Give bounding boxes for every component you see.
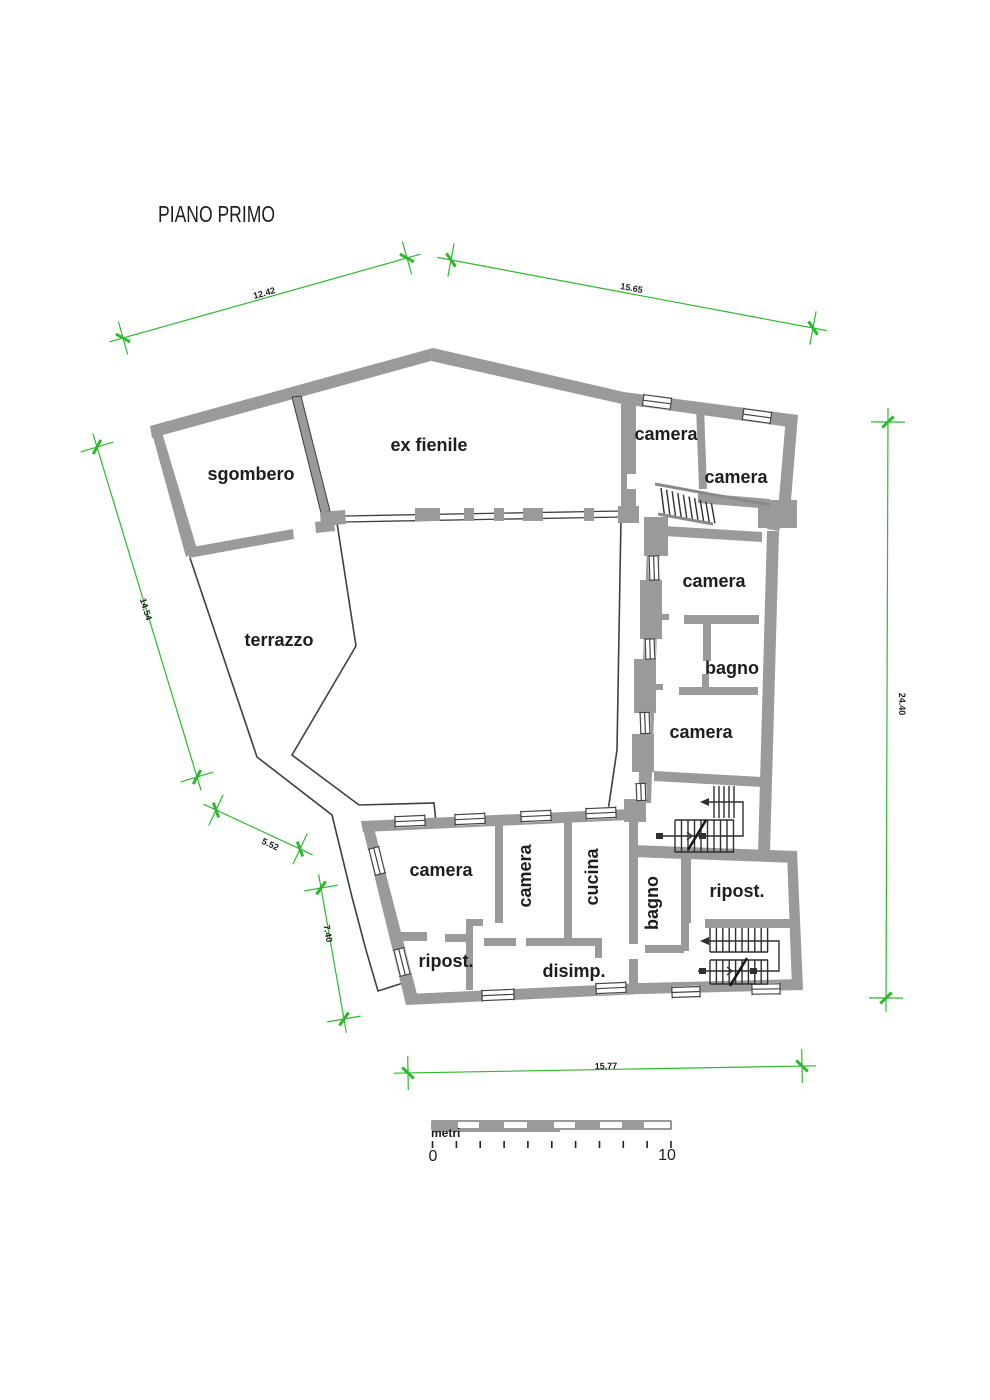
- svg-text:metri: metri: [431, 1126, 460, 1140]
- svg-text:PIANO PRIMO: PIANO PRIMO: [158, 201, 275, 227]
- svg-text:camera: camera: [409, 860, 473, 880]
- svg-text:cucina: cucina: [582, 848, 602, 906]
- svg-text:15.77: 15.77: [595, 1061, 618, 1071]
- svg-text:camera: camera: [669, 722, 733, 742]
- svg-text:7.40: 7.40: [322, 924, 335, 943]
- svg-text:ripost.: ripost.: [418, 951, 473, 971]
- svg-text:sgombero: sgombero: [207, 464, 294, 484]
- svg-text:ex fienile: ex fienile: [390, 435, 467, 455]
- svg-text:camera: camera: [682, 571, 746, 591]
- svg-text:15.65: 15.65: [620, 281, 644, 295]
- svg-text:camera: camera: [634, 424, 698, 444]
- svg-text:terrazzo: terrazzo: [244, 630, 313, 650]
- svg-text:0: 0: [429, 1148, 438, 1165]
- svg-text:camera: camera: [515, 843, 535, 907]
- svg-text:10: 10: [658, 1147, 676, 1164]
- svg-text:ripost.: ripost.: [709, 881, 764, 901]
- svg-text:bagno: bagno: [705, 658, 759, 678]
- svg-text:bagno: bagno: [642, 876, 662, 930]
- svg-text:14.54: 14.54: [138, 597, 154, 621]
- svg-text:camera: camera: [704, 467, 768, 487]
- svg-text:disimp.: disimp.: [542, 961, 605, 981]
- svg-text:24.40: 24.40: [897, 693, 907, 716]
